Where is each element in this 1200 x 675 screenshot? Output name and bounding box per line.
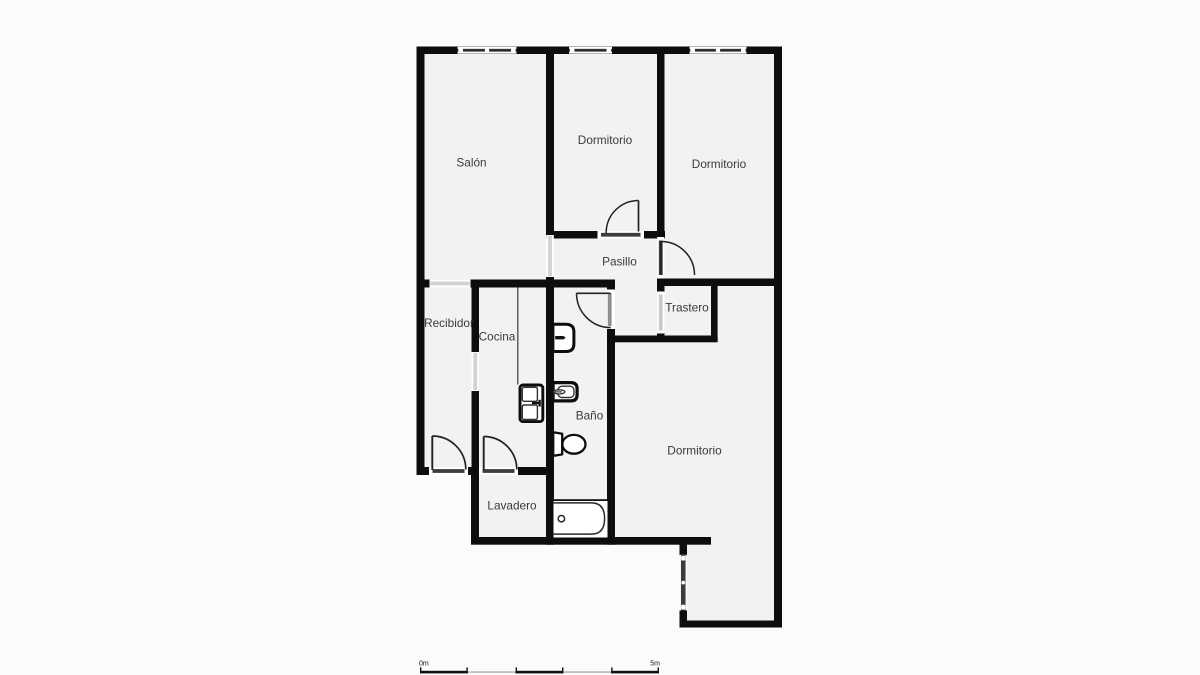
svg-text:Dormitorio: Dormitorio [692, 157, 747, 171]
svg-text:Dormitorio: Dormitorio [578, 133, 633, 147]
svg-text:5m: 5m [650, 661, 660, 668]
svg-text:0m: 0m [419, 661, 429, 668]
svg-text:Lavadero: Lavadero [487, 499, 537, 513]
svg-text:Recibidor: Recibidor [424, 316, 474, 330]
svg-text:Cocina: Cocina [479, 330, 516, 344]
svg-text:Salón: Salón [456, 156, 486, 170]
svg-text:Trastero: Trastero [665, 301, 709, 315]
svg-text:Dormitorio: Dormitorio [667, 444, 722, 458]
svg-text:Baño: Baño [576, 409, 604, 423]
svg-text:Pasillo: Pasillo [602, 255, 637, 269]
